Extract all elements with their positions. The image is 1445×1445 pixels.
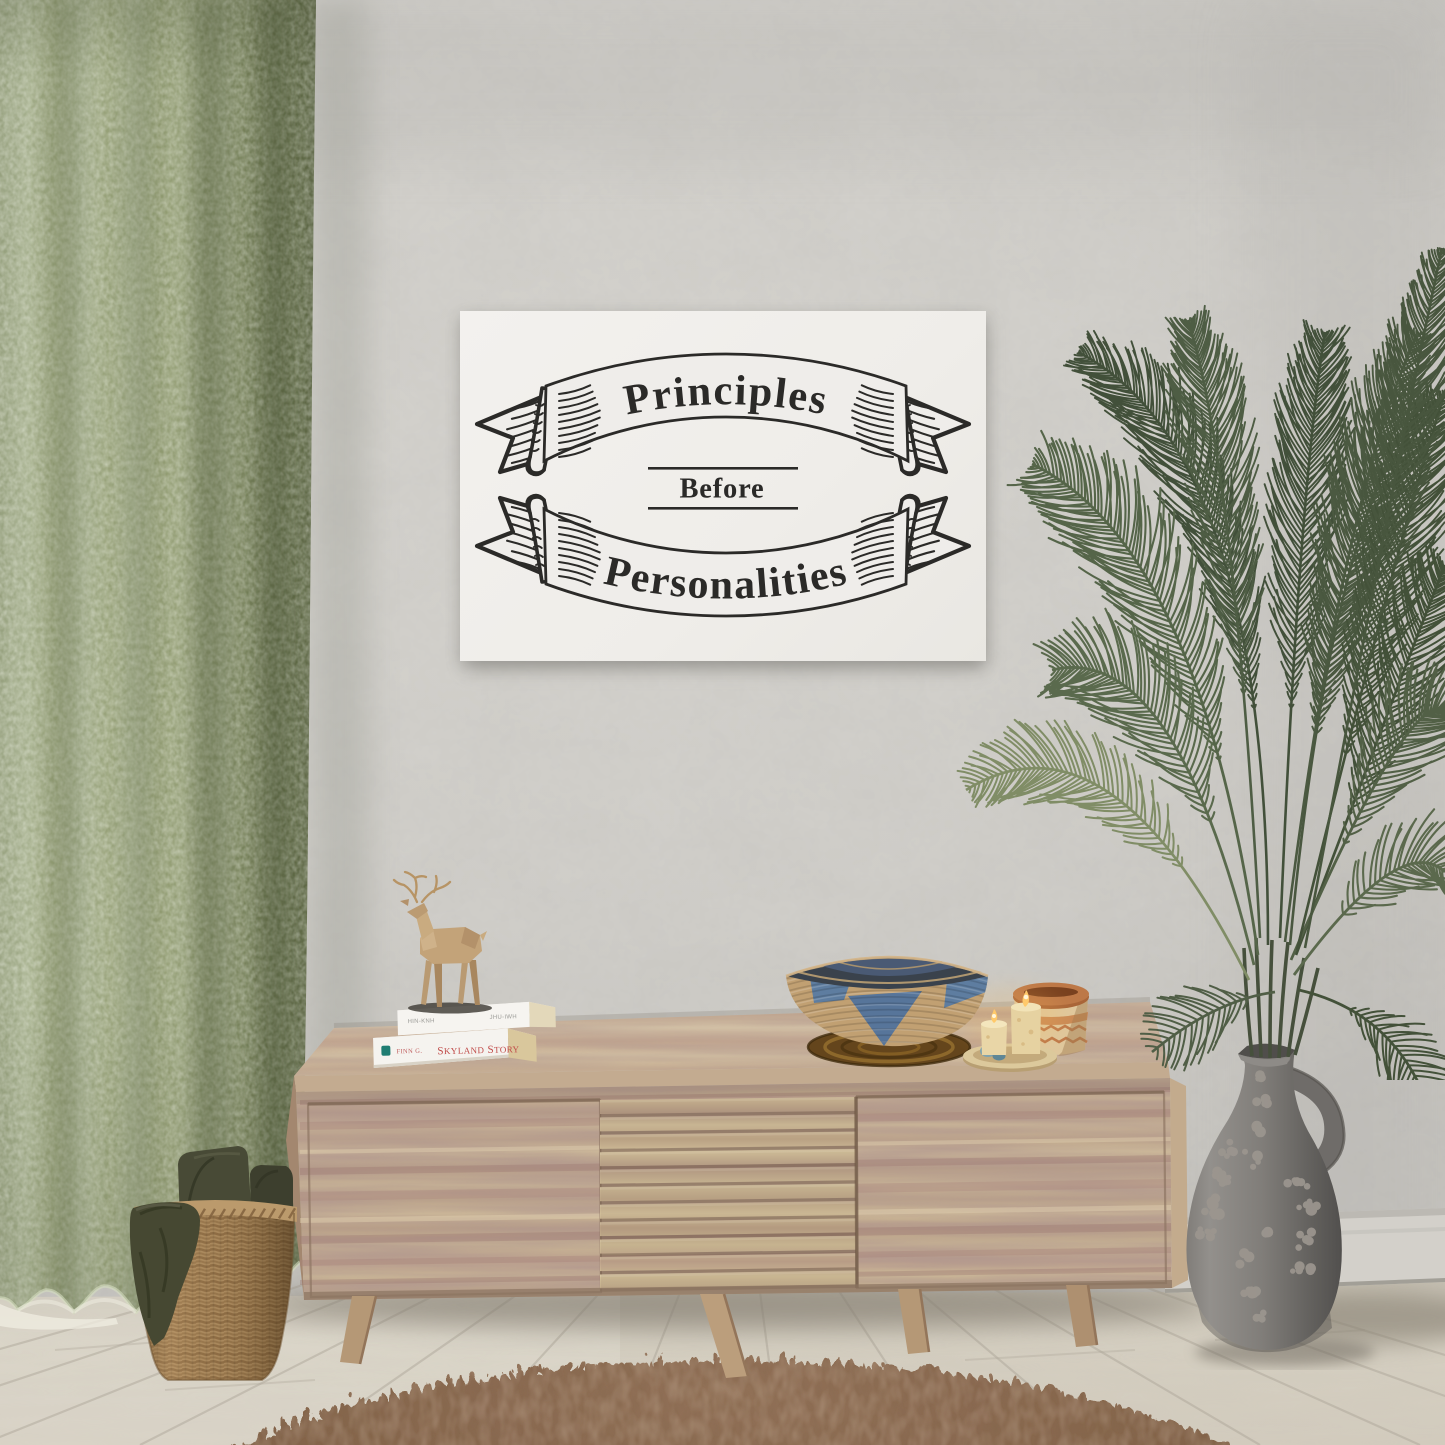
svg-text:Before: Before bbox=[680, 474, 765, 505]
svg-text:JHU-IWH: JHU-IWH bbox=[489, 1014, 517, 1021]
svg-text:HIN-KNH: HIN-KNH bbox=[408, 1018, 435, 1025]
svg-text:FINN G.: FINN G. bbox=[396, 1048, 422, 1056]
